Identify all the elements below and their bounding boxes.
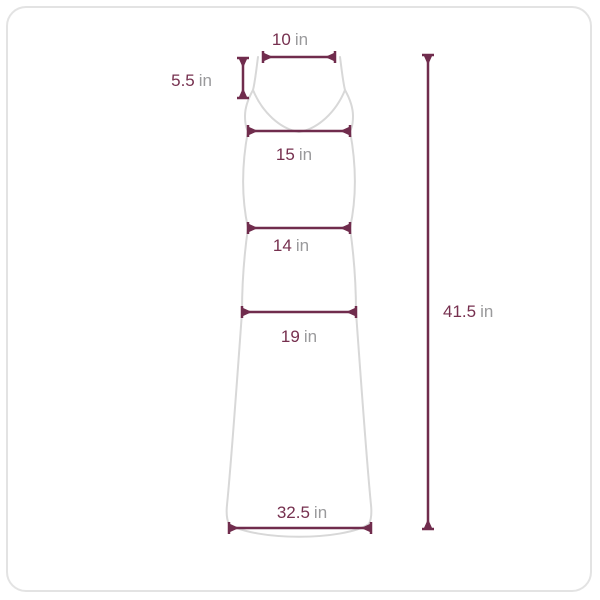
- top-width-value: 10: [272, 30, 291, 49]
- hem-measurement-label: 32.5in: [277, 503, 327, 522]
- hip-unit: in: [304, 327, 317, 346]
- bust-value: 15: [276, 145, 295, 164]
- bust-dimension-line: [248, 125, 350, 137]
- hip-dimension-line: [242, 306, 356, 318]
- total-length-unit: in: [480, 302, 493, 321]
- strap-drop-dimension-line: [237, 58, 249, 98]
- bust-measurement-label: 15in: [276, 145, 312, 164]
- waist-measurement-label: 14in: [273, 236, 309, 255]
- top-width-measurement-label: 10in: [272, 30, 308, 49]
- hem-unit: in: [314, 503, 327, 522]
- dress-measurement-diagram: 10in 5.5in 15in 14in 19in 32.5in 41.5in: [0, 0, 600, 600]
- waist-value: 14: [273, 236, 292, 255]
- bust-unit: in: [299, 145, 312, 164]
- strap-drop-value: 5.5: [171, 71, 195, 90]
- hip-value: 19: [281, 327, 300, 346]
- hip-measurement-label: 19in: [281, 327, 317, 346]
- waist-unit: in: [296, 236, 309, 255]
- total-length-measurement-label: 41.5in: [443, 302, 493, 321]
- strap-drop-unit: in: [199, 71, 212, 90]
- dress-neckline-outline: [253, 90, 345, 132]
- top-width-dimension-line: [263, 51, 335, 63]
- total-length-dimension-line: [422, 55, 434, 529]
- top-width-unit: in: [295, 30, 308, 49]
- total-length-value: 41.5: [443, 302, 476, 321]
- waist-dimension-line: [248, 222, 350, 234]
- hem-value: 32.5: [277, 503, 310, 522]
- strap-drop-measurement-label: 5.5in: [171, 71, 212, 90]
